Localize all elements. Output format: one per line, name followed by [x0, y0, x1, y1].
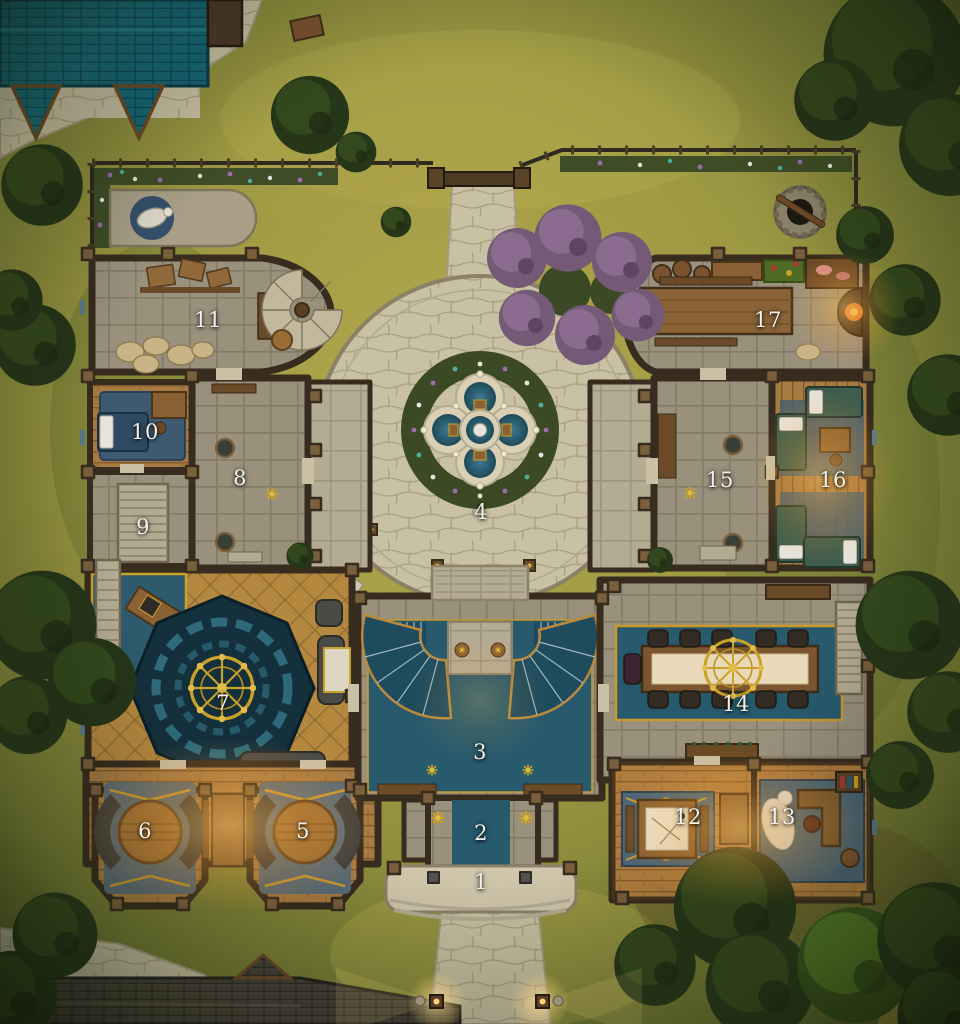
path-lamp-icon: [415, 995, 443, 1008]
battle-map-canvas: 1 2 3 4 5 6 7 8 9 10 11 12 13 14 15 16 1…: [0, 0, 960, 1024]
path-lamp-icon: [536, 995, 563, 1008]
battle-map-art: [0, 0, 960, 1024]
